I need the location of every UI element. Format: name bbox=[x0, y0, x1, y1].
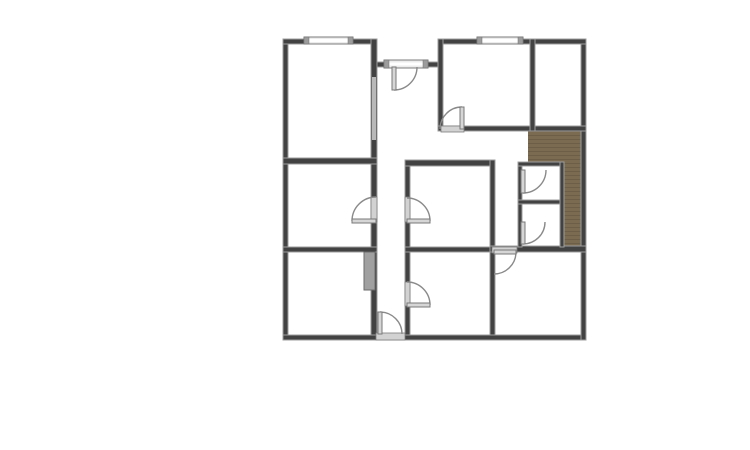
wall-opening-topleft-room bbox=[372, 77, 376, 140]
entry-door-frame bbox=[384, 60, 428, 68]
door-bottomright-room-swing-arc bbox=[494, 252, 516, 274]
walls-layer bbox=[283, 39, 586, 340]
door-hall-bottom-swing-arc bbox=[380, 312, 402, 334]
wall-center-rooms-divider bbox=[405, 247, 494, 252]
wall-outer-right bbox=[581, 39, 586, 340]
wall-midcenter-room-top bbox=[405, 160, 494, 166]
door-closet-top-leaf bbox=[521, 170, 525, 193]
door-frame-leftmiddle-room bbox=[371, 197, 377, 222]
door-closet-bottom-leaf bbox=[521, 222, 525, 244]
window-top-left-cap-left bbox=[304, 37, 309, 44]
wall-topleft-room-bottom bbox=[283, 158, 377, 164]
window-top-right-cap-left bbox=[477, 37, 482, 44]
wall-narrow-room-left bbox=[530, 39, 535, 131]
door-frame-midcenter-room bbox=[405, 197, 410, 222]
window-top-right bbox=[477, 37, 523, 44]
door-closet-top bbox=[521, 170, 546, 193]
windows-layer bbox=[304, 37, 523, 68]
door-entry bbox=[392, 67, 417, 90]
door-bottomright-room-leaf bbox=[494, 250, 516, 254]
door-leftmiddle-room-leaf bbox=[352, 219, 376, 223]
wall-closet-right bbox=[560, 162, 564, 247]
wall-topright-room-left bbox=[438, 39, 443, 131]
window-top-left-cap-right bbox=[348, 37, 353, 44]
door-closet-top-swing-arc bbox=[523, 170, 546, 193]
wall-left-rooms-divider bbox=[283, 247, 377, 252]
wall-closet-top bbox=[518, 162, 564, 166]
door-entry-swing-arc bbox=[394, 67, 417, 90]
door-hall-bottom-leaf bbox=[378, 312, 382, 334]
entry-door-frame-cap-right bbox=[423, 60, 428, 68]
floorplan-canvas[interactable] bbox=[0, 0, 750, 450]
door-closet-bottom bbox=[521, 222, 545, 244]
wall-outer-bottom bbox=[283, 335, 586, 340]
sliding-door-bottomleft-room bbox=[364, 252, 375, 290]
wood-floor-upper bbox=[528, 131, 581, 163]
door-topright-room-leaf bbox=[460, 107, 464, 129]
floorplan-page bbox=[0, 0, 750, 450]
door-bottomright-room bbox=[494, 250, 516, 274]
wall-outer-left bbox=[283, 39, 288, 340]
door-midcenter-room-leaf bbox=[407, 219, 430, 223]
entry-door-frame-cap-left bbox=[384, 60, 389, 68]
wall-closet-divider bbox=[518, 200, 564, 204]
door-hall-bottom bbox=[378, 312, 402, 334]
window-top-left bbox=[304, 37, 353, 44]
door-bottomcenter-room-leaf bbox=[407, 303, 430, 307]
window-top-right-cap-right bbox=[518, 37, 523, 44]
door-closet-bottom-swing-arc bbox=[523, 222, 545, 244]
doors-layer bbox=[352, 67, 546, 334]
wood-floor-right bbox=[564, 163, 581, 247]
door-entry-leaf bbox=[392, 67, 396, 90]
door-frame-bottomcenter-room bbox=[405, 282, 410, 306]
